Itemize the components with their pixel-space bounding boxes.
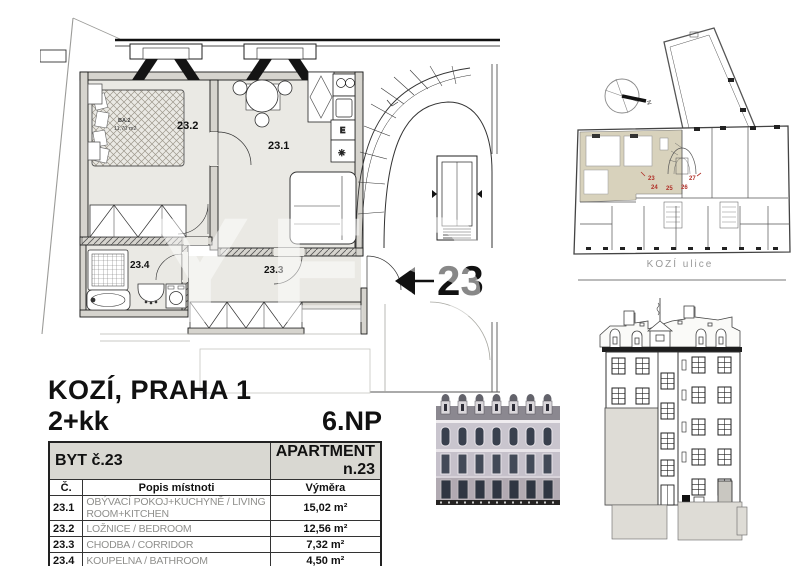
- svg-text:11,70 m2: 11,70 m2: [114, 126, 137, 132]
- table-row: 23.2 LOŽNICE / BEDROOM 12,56 m²: [49, 521, 381, 537]
- svg-text:27: 27: [689, 176, 696, 182]
- north-compass: N: [605, 79, 652, 113]
- label-bathroom: 23.4: [130, 260, 150, 271]
- svg-text:24: 24: [651, 185, 658, 191]
- col-number: Č.: [49, 480, 83, 496]
- street-label: KOZÍ ulice: [647, 257, 714, 270]
- building-elevation: [590, 295, 800, 565]
- north-label: N: [645, 100, 652, 106]
- svg-text:BA.2: BA.2: [118, 118, 131, 124]
- label-bedroom: 23.2: [177, 120, 198, 132]
- cornice: [602, 347, 742, 352]
- table-row: 23.4 KOUPELNA / BATHROOM 4,50 m²: [49, 553, 381, 566]
- apartment-plan-sheet: BA.2 11,70 m2 E ✳: [0, 0, 800, 566]
- elevator: [432, 156, 482, 240]
- photo-middle-floor: [436, 452, 560, 478]
- floor-label: 6.NP: [322, 406, 382, 437]
- main-floor-plan: BA.2 11,70 m2 E ✳: [40, 4, 500, 396]
- street-building: 23 24 25 26 27: [574, 125, 790, 254]
- sofa: [290, 172, 356, 244]
- building-photo: [428, 392, 568, 507]
- layout-label: 2+kk: [48, 406, 109, 437]
- facade: [605, 352, 740, 505]
- table-row: 23.3 CHODBA / CORRIDOR 7,32 m²: [49, 537, 381, 553]
- room-table: BYT č.23 APARTMENT n.23 Č. Popis místnot…: [48, 441, 382, 566]
- apartment-id-en: APARTMENT n.23: [270, 442, 381, 480]
- col-area: Výměra: [270, 480, 381, 496]
- svg-text:26: 26: [681, 185, 688, 191]
- table-row: 23.1 OBÝVACÍ POKOJ+KUCHYNĚ / LIVING ROOM…: [49, 496, 381, 521]
- bed: BA.2 11,70 m2: [92, 90, 184, 166]
- svg-text:25: 25: [666, 186, 673, 192]
- roof: [600, 298, 740, 347]
- photo-roof: [436, 394, 560, 423]
- svg-text:E: E: [340, 126, 346, 135]
- title-block: KOZÍ, PRAHA 1 2+kk 6.NP: [48, 376, 382, 437]
- photo-ground-floor: [436, 478, 560, 505]
- apartment-id-cz: BYT č.23: [49, 442, 270, 480]
- label-corridor: 23.3: [264, 265, 284, 276]
- svg-text:✳: ✳: [338, 148, 346, 158]
- photo-upper-floor: [436, 423, 560, 452]
- table-header-row: BYT č.23 APARTMENT n.23: [49, 442, 381, 480]
- page-title: KOZÍ, PRAHA 1: [48, 376, 382, 404]
- ground: [612, 502, 747, 540]
- label-living: 23.1: [268, 140, 289, 152]
- corridor-wardrobe: [190, 302, 302, 328]
- unit-number: 23: [437, 257, 484, 304]
- col-description: Popis místnoti: [83, 480, 270, 496]
- column-header-row: Č. Popis místnoti Výměra: [49, 480, 381, 496]
- site-plan: N: [572, 8, 792, 288]
- svg-text:23: 23: [648, 176, 655, 182]
- bedroom-railing: [90, 205, 186, 237]
- unit-callout: 23: [395, 257, 484, 304]
